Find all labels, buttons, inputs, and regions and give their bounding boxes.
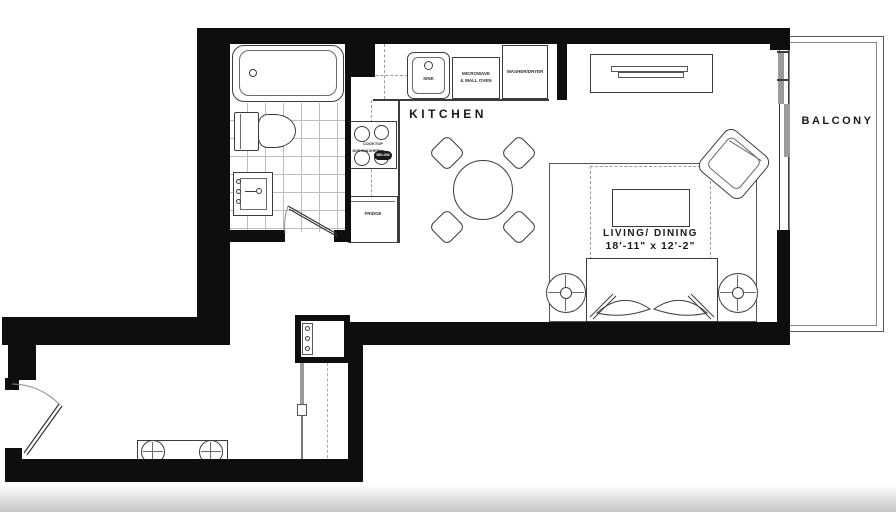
sink-label: SINK	[408, 76, 449, 82]
kitchen-counter-edge-side	[398, 100, 400, 243]
wall-hall-right	[348, 345, 363, 482]
kitchen-faucet	[424, 61, 433, 70]
dining-chair-nw	[429, 135, 466, 172]
entry-door-jamb-top	[5, 378, 19, 390]
closet-slider-lower	[301, 413, 303, 460]
living-room-label: LIVING/ DINING	[580, 228, 721, 239]
microwave-label-line2: & WALL OVEN	[453, 78, 499, 84]
entry-door-leaf	[24, 404, 59, 453]
wall-kitchen-notch	[345, 44, 375, 77]
sofa	[586, 258, 718, 322]
floor-plan: SINK MICROWAVE & WALL OVEN WASHER/DRYER …	[0, 0, 896, 512]
utility-glyph-2	[305, 336, 310, 341]
microwave-label-line1: MICROWAVE	[453, 71, 499, 77]
vanity-faucet-dot-1	[236, 179, 241, 184]
utility-glyph-3	[305, 346, 310, 351]
cooktop-burner-1	[354, 126, 370, 142]
sliding-door-panel-2	[784, 104, 790, 157]
wall-hall-bottom	[5, 459, 363, 482]
coffee-table	[612, 189, 690, 227]
cooktop-burner-2	[374, 125, 389, 140]
entry-door-swing-arc	[12, 384, 60, 405]
tv-stand	[618, 72, 684, 78]
side-table-cell-left	[586, 270, 587, 322]
utility-glyph-1	[305, 326, 310, 331]
vanity-sink-basin	[240, 178, 267, 210]
wall-balcony-lower	[777, 230, 790, 325]
bench-left-crosshair-h	[143, 451, 163, 452]
vanity-faucet-dot-2	[236, 189, 241, 194]
wall-entry-stub	[8, 345, 36, 380]
window-tick-1	[777, 51, 789, 53]
vanity-faucet-dot-3	[236, 199, 241, 204]
dining-chair-sw	[429, 209, 466, 246]
balcony-label: BALCONY	[795, 115, 880, 127]
side-table-left-center	[560, 287, 572, 299]
wall-top	[197, 28, 790, 44]
kitchen-dash-upper-cabinet	[384, 44, 385, 99]
balcony-outline-inner	[789, 42, 877, 326]
vanity-spout	[245, 191, 256, 192]
fridge-label: FRIDGE	[350, 211, 396, 217]
bench-right-crosshair-h	[201, 451, 221, 452]
bathtub-drain	[249, 69, 257, 77]
closet-rod-dashed	[327, 363, 328, 458]
wall-bathroom-bottom-left	[197, 230, 285, 242]
dining-chair-se	[501, 209, 538, 246]
dining-chair-ne	[501, 135, 538, 172]
wall-left	[197, 28, 230, 345]
dining-table	[453, 160, 513, 220]
entry-door-leaf-2	[27, 406, 62, 455]
toilet-tank-line	[240, 114, 241, 149]
living-room-dimensions: 18'-11" x 12'-2"	[580, 240, 721, 252]
wall-bathroom-bottom-right	[334, 230, 351, 242]
kitchen-room-label: KITCHEN	[403, 107, 493, 121]
fridge	[348, 196, 398, 243]
wall-hall-top	[2, 317, 230, 345]
closet-slider-bracket	[297, 404, 307, 416]
washer-dryer-label: WASHER/DRYER	[503, 69, 547, 75]
toilet-tank	[234, 112, 259, 151]
wall-balcony-upper-block	[770, 28, 790, 50]
fridge-inner-line	[351, 201, 395, 202]
side-table-right-center	[732, 287, 744, 299]
window-tick-2	[777, 79, 789, 81]
dishwasher-below-tag: BELOW	[374, 151, 392, 160]
wall-living-bottom	[345, 322, 790, 345]
wall-washer-stub	[557, 44, 567, 100]
vanity-spout-end	[256, 188, 262, 194]
cooktop-label: COOKTOP	[350, 141, 396, 146]
